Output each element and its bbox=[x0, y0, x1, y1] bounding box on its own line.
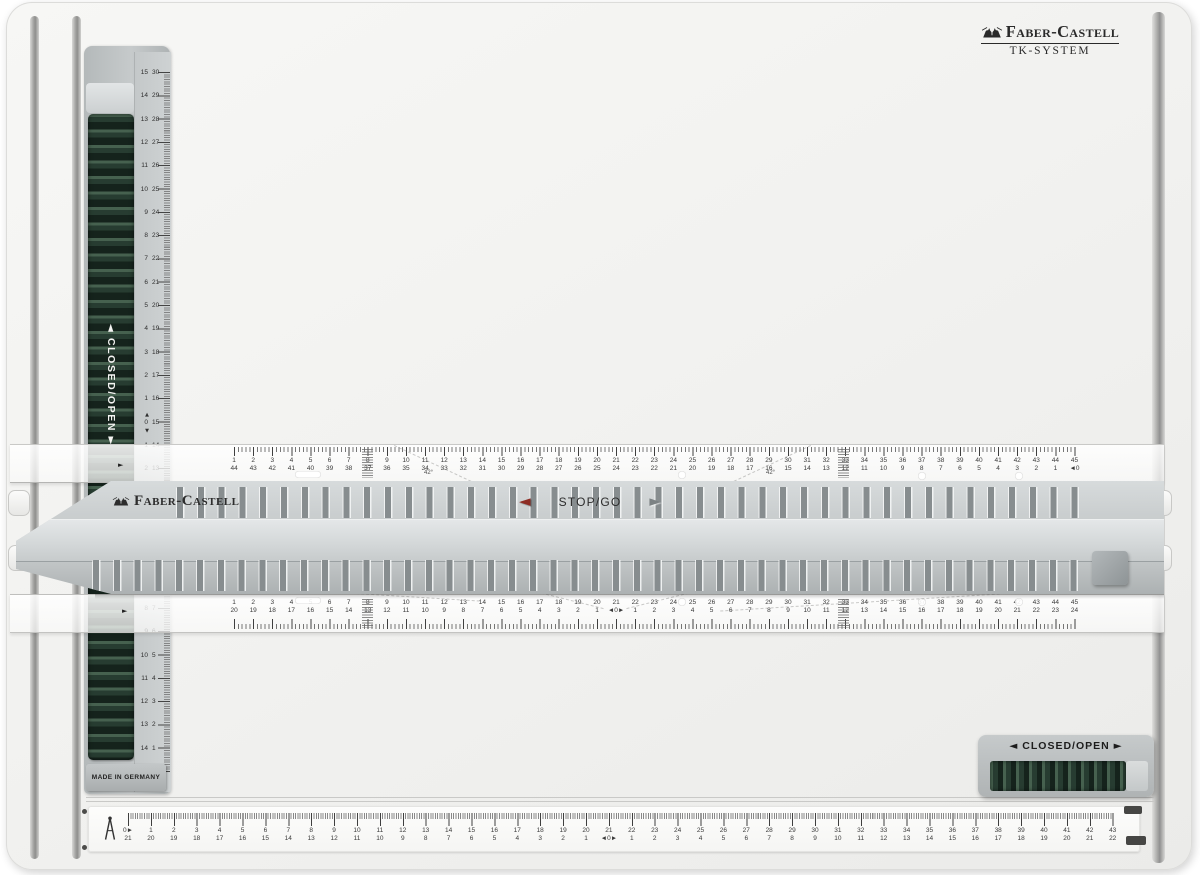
zero-pointer-icon: ► bbox=[118, 461, 123, 469]
drawing-board-photo: Faber-Castell TK-SYSTEM ◄ CLOSED/OPEN ► … bbox=[0, 0, 1200, 875]
brand-logo: Faber-Castell TK-SYSTEM bbox=[980, 22, 1120, 57]
scale-pair: 4322 bbox=[1102, 827, 1124, 843]
jousting-knights-icon bbox=[112, 496, 130, 507]
scale-pair: 3211 bbox=[850, 827, 872, 843]
open-arrow-icon: ► bbox=[1114, 740, 1123, 752]
scale-pair: 219 bbox=[163, 827, 185, 843]
ruler-hole bbox=[1015, 472, 1023, 480]
jousting-knights-icon bbox=[981, 26, 1003, 39]
closed-arrow-icon: ◄ bbox=[105, 324, 117, 334]
scale-pair: 4221 bbox=[1079, 827, 1101, 843]
angle-mark: 42° bbox=[766, 470, 775, 476]
scale-pair: 318 bbox=[186, 827, 208, 843]
scale-pair: 138 bbox=[415, 827, 437, 843]
scale-pair: 823 bbox=[138, 231, 164, 240]
scale-pair: 3615 bbox=[941, 827, 963, 843]
stop-arrow-icon: ◄ bbox=[519, 494, 531, 509]
left-edge-groove-2 bbox=[72, 16, 81, 859]
clamp-closed-open-label: ◄ CLOSED/OPEN ► bbox=[978, 740, 1154, 752]
scale-pair: 45◄0 bbox=[1064, 457, 1086, 473]
left-edge-groove bbox=[30, 16, 39, 859]
scale-pair: 3413 bbox=[896, 827, 918, 843]
ruler-hole bbox=[678, 598, 686, 606]
vernier-block bbox=[362, 599, 373, 628]
rail-slider-cap bbox=[86, 83, 134, 113]
scale-pair: 276 bbox=[735, 827, 757, 843]
board-bottom-scale: 0►21120219318417516615714813912101111101… bbox=[88, 806, 1140, 852]
carriage-shadow bbox=[95, 594, 1164, 599]
made-in-germany-plate: MADE IN GERMANY bbox=[86, 764, 166, 791]
scale-pair: 221 bbox=[621, 827, 643, 843]
scale-pair: 3716 bbox=[964, 827, 986, 843]
ruler-hole bbox=[678, 471, 686, 479]
scale-pair: 232 bbox=[644, 827, 666, 843]
bottom-scale-long-ticks bbox=[128, 813, 1114, 826]
scale-pair: 114 bbox=[138, 674, 164, 683]
scale-pair: 174 bbox=[506, 827, 528, 843]
carriage-brand: Faber-Castell bbox=[112, 481, 239, 522]
vertical-clamp-grip: ◄ CLOSED/OPEN ► bbox=[88, 114, 134, 760]
vertical-scale: 1530142913281227112610259248237226215204… bbox=[134, 52, 171, 792]
scale-pair: 217 bbox=[138, 371, 164, 380]
scale-pair: ▲▼015 bbox=[138, 418, 164, 427]
scale-pair: 21◄0► bbox=[598, 827, 620, 843]
stop-go-control: ◄ STOP/GO ► bbox=[519, 481, 661, 522]
scale-pair: 1011 bbox=[346, 827, 368, 843]
scale-pair: 165 bbox=[483, 827, 505, 843]
scale-pair: 243 bbox=[667, 827, 689, 843]
scale-pair: 147 bbox=[438, 827, 460, 843]
scale-pair: 318 bbox=[138, 348, 164, 357]
scale-pair: 615 bbox=[254, 827, 276, 843]
divider-compass-icon bbox=[102, 814, 118, 842]
ruler-top-scale: 1442433424415406397388379361035113412331… bbox=[10, 444, 1164, 483]
scale-pair: 1429 bbox=[138, 91, 164, 100]
scale-pair: 201 bbox=[575, 827, 597, 843]
vernier-block bbox=[838, 449, 849, 478]
ruler-top-long-ticks bbox=[234, 447, 1076, 456]
scale-pair: 417 bbox=[209, 827, 231, 843]
scale-pair: 183 bbox=[529, 827, 551, 843]
scale-pair: 4120 bbox=[1056, 827, 1078, 843]
scale-pair: 3312 bbox=[873, 827, 895, 843]
ruler-carriage: Faber-Castell ◄ STOP/GO ► bbox=[16, 481, 1164, 594]
ruler-end-tab bbox=[8, 490, 30, 516]
carriage-center-band bbox=[16, 519, 1164, 562]
screw-dot bbox=[82, 809, 87, 814]
brand-name: Faber-Castell bbox=[981, 22, 1119, 44]
closed-arrow-icon: ◄ bbox=[1009, 740, 1018, 752]
right-edge-groove bbox=[1152, 12, 1165, 863]
scale-pair: 3918 bbox=[1010, 827, 1032, 843]
scale-pair: 309 bbox=[804, 827, 826, 843]
scale-pair: 813 bbox=[300, 827, 322, 843]
scale-pair: 298 bbox=[781, 827, 803, 843]
scale-pair: 3817 bbox=[987, 827, 1009, 843]
vernier-block bbox=[362, 449, 373, 478]
scale-pair: 1110 bbox=[369, 827, 391, 843]
brand-name-text: Faber-Castell bbox=[1006, 22, 1119, 42]
scale-pair: 120 bbox=[140, 827, 162, 843]
scale-pair: 621 bbox=[138, 278, 164, 287]
ruler-hole bbox=[918, 472, 926, 480]
scale-pair: 129 bbox=[392, 827, 414, 843]
bottom-groove-line bbox=[86, 801, 1154, 802]
scale-pair: 516 bbox=[232, 827, 254, 843]
clamp-closed-open-text: CLOSED/OPEN bbox=[1022, 740, 1109, 752]
angle-mark: 42° bbox=[424, 470, 433, 476]
bottom-groove-line bbox=[86, 797, 1154, 798]
scale-pair: 123 bbox=[138, 697, 164, 706]
scale-pair: 4019 bbox=[1033, 827, 1055, 843]
scale-pair: 254 bbox=[690, 827, 712, 843]
scale-pair: 287 bbox=[758, 827, 780, 843]
go-arrow-icon: ► bbox=[649, 494, 661, 509]
scale-pair: 520 bbox=[138, 301, 164, 310]
scale-pair: 116 bbox=[138, 394, 164, 403]
scale-pair: 192 bbox=[552, 827, 574, 843]
scale-pair: 141 bbox=[138, 744, 164, 753]
scale-pair: 1126 bbox=[138, 161, 164, 170]
scale-pair: 3110 bbox=[827, 827, 849, 843]
clamp-slider-tab bbox=[1126, 761, 1148, 791]
brand-system-text: TK-SYSTEM bbox=[980, 45, 1120, 57]
edge-clamp-bit bbox=[1126, 836, 1146, 845]
scale-pair: 714 bbox=[277, 827, 299, 843]
scale-pair: 924 bbox=[138, 208, 164, 217]
scale-pair: 132 bbox=[138, 720, 164, 729]
scale-pair: 265 bbox=[712, 827, 734, 843]
zero-pointer-icon: ► bbox=[122, 607, 127, 615]
carriage-brake-tab bbox=[1092, 551, 1128, 585]
carriage-bottom-ribs bbox=[92, 560, 1085, 591]
screw-dot bbox=[82, 845, 87, 850]
carriage-brand-text: Faber-Castell bbox=[134, 493, 239, 510]
scale-pair: 1328 bbox=[138, 115, 164, 124]
scale-pair: 1025 bbox=[138, 185, 164, 194]
scale-pair: 156 bbox=[461, 827, 483, 843]
scale-pair: 1530 bbox=[138, 68, 164, 77]
closed-open-text: CLOSED/OPEN bbox=[105, 338, 117, 432]
stop-go-label: STOP/GO bbox=[559, 495, 622, 509]
ruler-bottom-long-ticks bbox=[234, 619, 1076, 629]
bottom-clamp: ◄ CLOSED/OPEN ► bbox=[978, 735, 1154, 797]
scale-pair: 0►21 bbox=[117, 827, 139, 843]
ruler-slot bbox=[295, 471, 321, 478]
ruler-bottom-scale: 1202193184175166157148139121011111012913… bbox=[10, 594, 1164, 633]
scale-pair: 4524 bbox=[1064, 599, 1086, 615]
clamp-grip bbox=[990, 761, 1126, 791]
scale-pair: 419 bbox=[138, 324, 164, 333]
ruler-hole bbox=[1015, 598, 1023, 606]
scale-pair: 722 bbox=[138, 254, 164, 263]
edge-clamp-bit bbox=[1124, 806, 1142, 814]
scale-pair: 912 bbox=[323, 827, 345, 843]
scale-pair: 105 bbox=[138, 651, 164, 660]
scale-pair: 1227 bbox=[138, 138, 164, 147]
scale-pair: 3514 bbox=[919, 827, 941, 843]
